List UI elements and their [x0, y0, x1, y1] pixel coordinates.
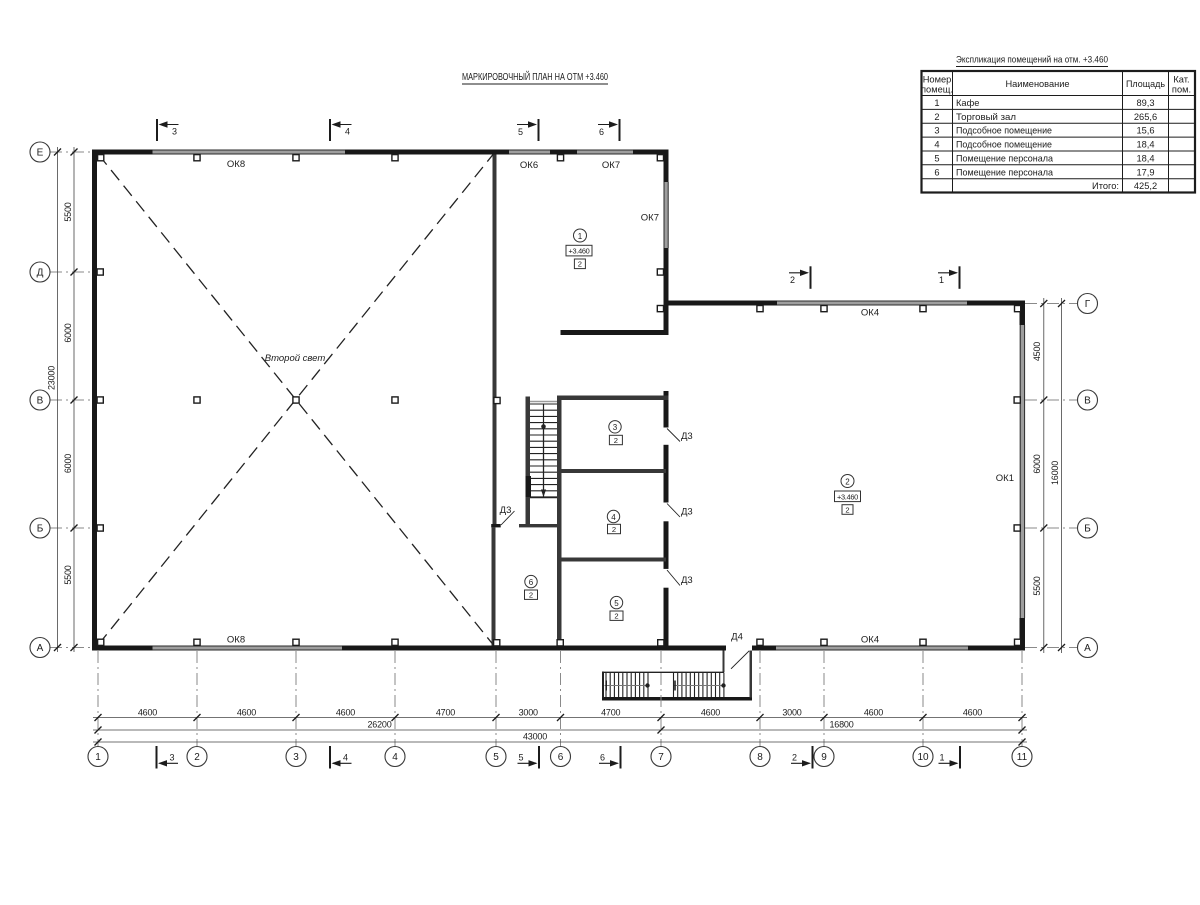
- svg-text:ОК7: ОК7: [641, 213, 659, 224]
- svg-text:3: 3: [172, 127, 177, 137]
- svg-text:265,6: 265,6: [1134, 112, 1157, 122]
- svg-text:7: 7: [658, 752, 664, 763]
- svg-text:4600: 4600: [963, 707, 982, 717]
- svg-text:2: 2: [845, 505, 849, 514]
- svg-text:5: 5: [493, 752, 499, 763]
- svg-text:МАРКИРОВОЧНЫЙ ПЛАН НА ОТМ +3.4: МАРКИРОВОЧНЫЙ ПЛАН НА ОТМ +3.460: [462, 70, 608, 83]
- svg-text:Кафе: Кафе: [956, 98, 979, 108]
- svg-text:5: 5: [614, 599, 619, 608]
- svg-text:ОК6: ОК6: [520, 160, 538, 171]
- svg-text:А: А: [1084, 643, 1091, 654]
- svg-text:1: 1: [934, 98, 939, 108]
- svg-text:ОК1: ОК1: [996, 473, 1014, 484]
- svg-text:Д3: Д3: [500, 505, 512, 516]
- svg-text:Торговый зал: Торговый зал: [956, 112, 1016, 122]
- svg-text:5500: 5500: [1032, 576, 1042, 595]
- svg-text:Б: Б: [1084, 524, 1091, 535]
- svg-text:В: В: [1084, 396, 1091, 407]
- svg-text:Подсобное помещение: Подсобное помещение: [956, 126, 1052, 136]
- svg-text:+3.460: +3.460: [837, 492, 858, 501]
- svg-text:3: 3: [934, 126, 939, 136]
- svg-text:16800: 16800: [829, 720, 853, 730]
- svg-text:2: 2: [529, 591, 533, 600]
- svg-text:Г: Г: [1085, 299, 1091, 310]
- svg-text:4600: 4600: [237, 707, 256, 717]
- svg-text:9: 9: [821, 752, 827, 763]
- svg-text:2: 2: [612, 525, 616, 534]
- svg-text:1: 1: [578, 232, 583, 241]
- svg-text:Площадь: Площадь: [1126, 79, 1165, 89]
- svg-text:2: 2: [614, 612, 618, 621]
- svg-text:425,2: 425,2: [1134, 181, 1157, 191]
- svg-text:5: 5: [518, 127, 523, 137]
- svg-text:Помещение персонала: Помещение персонала: [956, 167, 1054, 177]
- svg-text:Кат.: Кат.: [1173, 75, 1189, 85]
- svg-text:43000: 43000: [523, 732, 547, 742]
- svg-text:Д3: Д3: [681, 431, 693, 442]
- svg-text:6000: 6000: [63, 323, 73, 342]
- svg-text:26200: 26200: [367, 720, 391, 730]
- svg-text:ОК7: ОК7: [602, 160, 620, 171]
- svg-text:помещ.: помещ.: [921, 85, 953, 95]
- svg-text:пом.: пом.: [1172, 85, 1191, 95]
- svg-text:ОК8: ОК8: [227, 635, 245, 646]
- svg-text:ОК8: ОК8: [227, 159, 245, 170]
- svg-text:6000: 6000: [63, 454, 73, 473]
- svg-text:2: 2: [578, 260, 582, 269]
- svg-text:2: 2: [934, 112, 939, 122]
- svg-text:3: 3: [293, 752, 299, 763]
- svg-text:5500: 5500: [63, 565, 73, 584]
- svg-text:18,4: 18,4: [1136, 153, 1154, 163]
- svg-text:11: 11: [1017, 752, 1028, 763]
- svg-text:4: 4: [934, 140, 939, 150]
- svg-text:4500: 4500: [1032, 342, 1042, 361]
- svg-text:2: 2: [790, 275, 795, 285]
- svg-text:1: 1: [95, 752, 101, 763]
- svg-text:4600: 4600: [701, 707, 720, 717]
- svg-text:2: 2: [194, 752, 200, 763]
- svg-text:2: 2: [792, 752, 797, 762]
- svg-text:Д3: Д3: [681, 507, 693, 518]
- svg-text:4600: 4600: [336, 707, 355, 717]
- svg-text:ОК4: ОК4: [861, 635, 879, 646]
- svg-text:Номер: Номер: [923, 75, 952, 85]
- svg-text:5: 5: [934, 153, 939, 163]
- svg-text:Итого:: Итого:: [1092, 181, 1119, 191]
- svg-text:Д: Д: [37, 268, 44, 279]
- svg-text:6000: 6000: [1032, 454, 1042, 473]
- svg-text:3: 3: [613, 423, 618, 432]
- svg-text:17,9: 17,9: [1136, 167, 1154, 177]
- svg-text:5: 5: [519, 752, 524, 762]
- svg-text:+3.460: +3.460: [568, 247, 589, 256]
- svg-text:4: 4: [392, 752, 398, 763]
- svg-text:ОК4: ОК4: [861, 308, 879, 319]
- svg-text:Экспликация помещений на отм.: Экспликация помещений на отм. +3.460: [956, 55, 1108, 65]
- svg-text:3000: 3000: [782, 707, 801, 717]
- svg-text:4700: 4700: [601, 707, 620, 717]
- svg-text:6: 6: [600, 752, 605, 762]
- svg-text:23000: 23000: [46, 366, 56, 390]
- svg-text:6: 6: [529, 578, 534, 587]
- svg-text:15,6: 15,6: [1136, 126, 1154, 136]
- svg-text:Д4: Д4: [731, 632, 743, 643]
- svg-text:6: 6: [558, 752, 564, 763]
- svg-text:Помещение персонала: Помещение персонала: [956, 153, 1054, 163]
- svg-text:4: 4: [611, 513, 616, 522]
- svg-text:4700: 4700: [436, 707, 455, 717]
- svg-text:3: 3: [170, 752, 175, 762]
- svg-text:4: 4: [343, 752, 348, 762]
- svg-text:1: 1: [939, 275, 944, 285]
- svg-text:2: 2: [614, 436, 618, 445]
- svg-text:8: 8: [757, 752, 763, 763]
- svg-text:Д3: Д3: [681, 575, 693, 586]
- svg-text:18,4: 18,4: [1136, 140, 1154, 150]
- svg-text:89,3: 89,3: [1136, 98, 1154, 108]
- svg-text:А: А: [37, 643, 44, 654]
- svg-text:Подсобное помещение: Подсобное помещение: [956, 140, 1052, 150]
- svg-text:Е: Е: [37, 148, 44, 159]
- svg-text:4600: 4600: [138, 707, 157, 717]
- svg-text:Б: Б: [37, 524, 44, 535]
- svg-text:10: 10: [917, 752, 929, 763]
- svg-text:3000: 3000: [519, 707, 538, 717]
- svg-text:Наименование: Наименование: [1006, 79, 1070, 89]
- svg-text:2: 2: [845, 477, 850, 486]
- svg-text:4600: 4600: [864, 707, 883, 717]
- svg-text:4: 4: [345, 127, 350, 137]
- svg-text:Второй свет: Второй свет: [265, 353, 326, 364]
- svg-text:5500: 5500: [63, 202, 73, 221]
- svg-text:В: В: [37, 396, 44, 407]
- svg-text:6: 6: [934, 167, 939, 177]
- svg-text:1: 1: [940, 752, 945, 762]
- svg-text:16000: 16000: [1050, 461, 1060, 485]
- svg-text:6: 6: [599, 127, 604, 137]
